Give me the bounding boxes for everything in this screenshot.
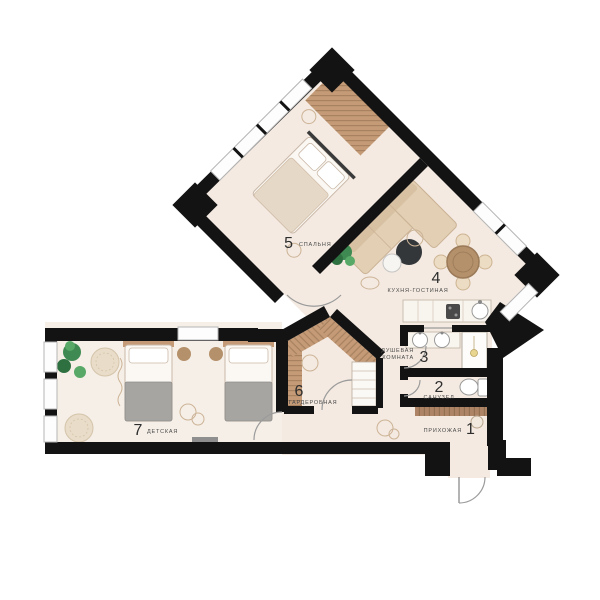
- kids-plant-leaf-4: [65, 341, 75, 351]
- wall-wardrobe-bottom-left: [284, 406, 314, 414]
- wall-wardrobe-bottom-right: [352, 406, 378, 414]
- room-6-number: 6: [295, 383, 304, 400]
- wall-entrance-right-2: [497, 458, 531, 476]
- wall-kids-right: [276, 341, 288, 412]
- floor-plan-svg: 5 СПАЛЬНЯ 4 КУХНЯ-ГОСТИНАЯ 3 ДУШЕВАЯ КОМ…: [0, 0, 600, 600]
- kids-rug-2: [65, 414, 93, 442]
- wall-wardrobe-east: [376, 358, 383, 408]
- kids-window-3: [44, 416, 57, 442]
- kids-window-top: [178, 327, 218, 340]
- kids-window-1: [44, 342, 57, 372]
- dining-chair-w: [434, 255, 448, 269]
- wall-entrance-left: [425, 442, 450, 476]
- vanity-sink-2: [435, 333, 450, 348]
- room-7-number: 7: [134, 422, 143, 439]
- room-1-number: 1: [466, 421, 475, 438]
- room-1-name: ПРИХОЖАЯ: [424, 428, 462, 434]
- stove-burner-1: [449, 307, 452, 310]
- kids-rug-1: [91, 348, 119, 376]
- kids-side-table-2: [209, 347, 223, 361]
- kids-bed-2: [223, 341, 274, 421]
- room-3-name-line2: КОМНАТА: [382, 355, 414, 361]
- room-2-number: 2: [435, 379, 444, 396]
- kids-bed-1-blanket: [125, 382, 172, 421]
- hall-closet-slats: [415, 406, 493, 416]
- toilet-bowl: [460, 379, 478, 395]
- room-3-number: 3: [420, 349, 429, 366]
- kitchen-counter: [403, 300, 491, 322]
- wall-kids-bottom: [45, 442, 290, 454]
- floor-plan: 5 СПАЛЬНЯ 4 КУХНЯ-ГОСТИНАЯ 3 ДУШЕВАЯ КОМ…: [0, 0, 600, 600]
- kids-window-2: [44, 379, 57, 409]
- wall-kids-top-joint: [248, 329, 284, 342]
- wardrobe-shelf-unit: [352, 362, 376, 406]
- kids-bed-1: [123, 341, 174, 421]
- toilet: [460, 379, 488, 396]
- kids-bed-2-pillow: [229, 348, 268, 363]
- stove: [446, 304, 460, 319]
- entrance-door-arc: [459, 477, 485, 503]
- kids-plant-leaf-2: [57, 359, 71, 373]
- wall-right-band: [487, 348, 503, 446]
- wall-stub-shower-top: [400, 332, 408, 346]
- vanity-faucet-2: [441, 332, 444, 335]
- wall-kitchen-shower-1: [400, 325, 424, 332]
- toilet-tank: [478, 379, 488, 396]
- kids-side-table-1: [177, 347, 191, 361]
- kids-bed-1-pillow: [129, 348, 168, 363]
- wall-kitchen-shower-2: [452, 325, 490, 332]
- shower-pendant-light: [471, 350, 478, 357]
- room-4-number: 4: [432, 270, 441, 287]
- room-5-number: 5: [284, 235, 293, 252]
- wall-shower-bathroom: [400, 368, 492, 377]
- floor-entrance-nub: [448, 450, 490, 478]
- room-6-name: ГАРДЕРОБНАЯ: [289, 400, 338, 406]
- kids-plant-leaf-3: [74, 366, 86, 378]
- vanity-sink-1: [413, 333, 428, 348]
- stove-burner-2: [455, 314, 458, 317]
- room-7-name: ДЕТСКАЯ: [147, 429, 178, 435]
- dining-chair-e: [478, 255, 492, 269]
- room-3-name-line1: ДУШЕВАЯ: [381, 348, 414, 354]
- room-4-name: КУХНЯ-ГОСТИНАЯ: [387, 288, 448, 294]
- wall-corridor-bottom: [290, 442, 425, 454]
- kids-bed-2-blanket: [225, 382, 272, 421]
- plant-leaf-3: [345, 256, 355, 266]
- room-5-name: СПАЛЬНЯ: [299, 242, 331, 248]
- kitchen-sink: [472, 303, 488, 319]
- kitchen-faucet: [478, 300, 482, 304]
- dining-table: [447, 246, 479, 278]
- coffee-table-white: [383, 254, 401, 272]
- wall-kids-top: [45, 328, 258, 341]
- room-2-name: САНУЗЕЛ: [423, 395, 454, 401]
